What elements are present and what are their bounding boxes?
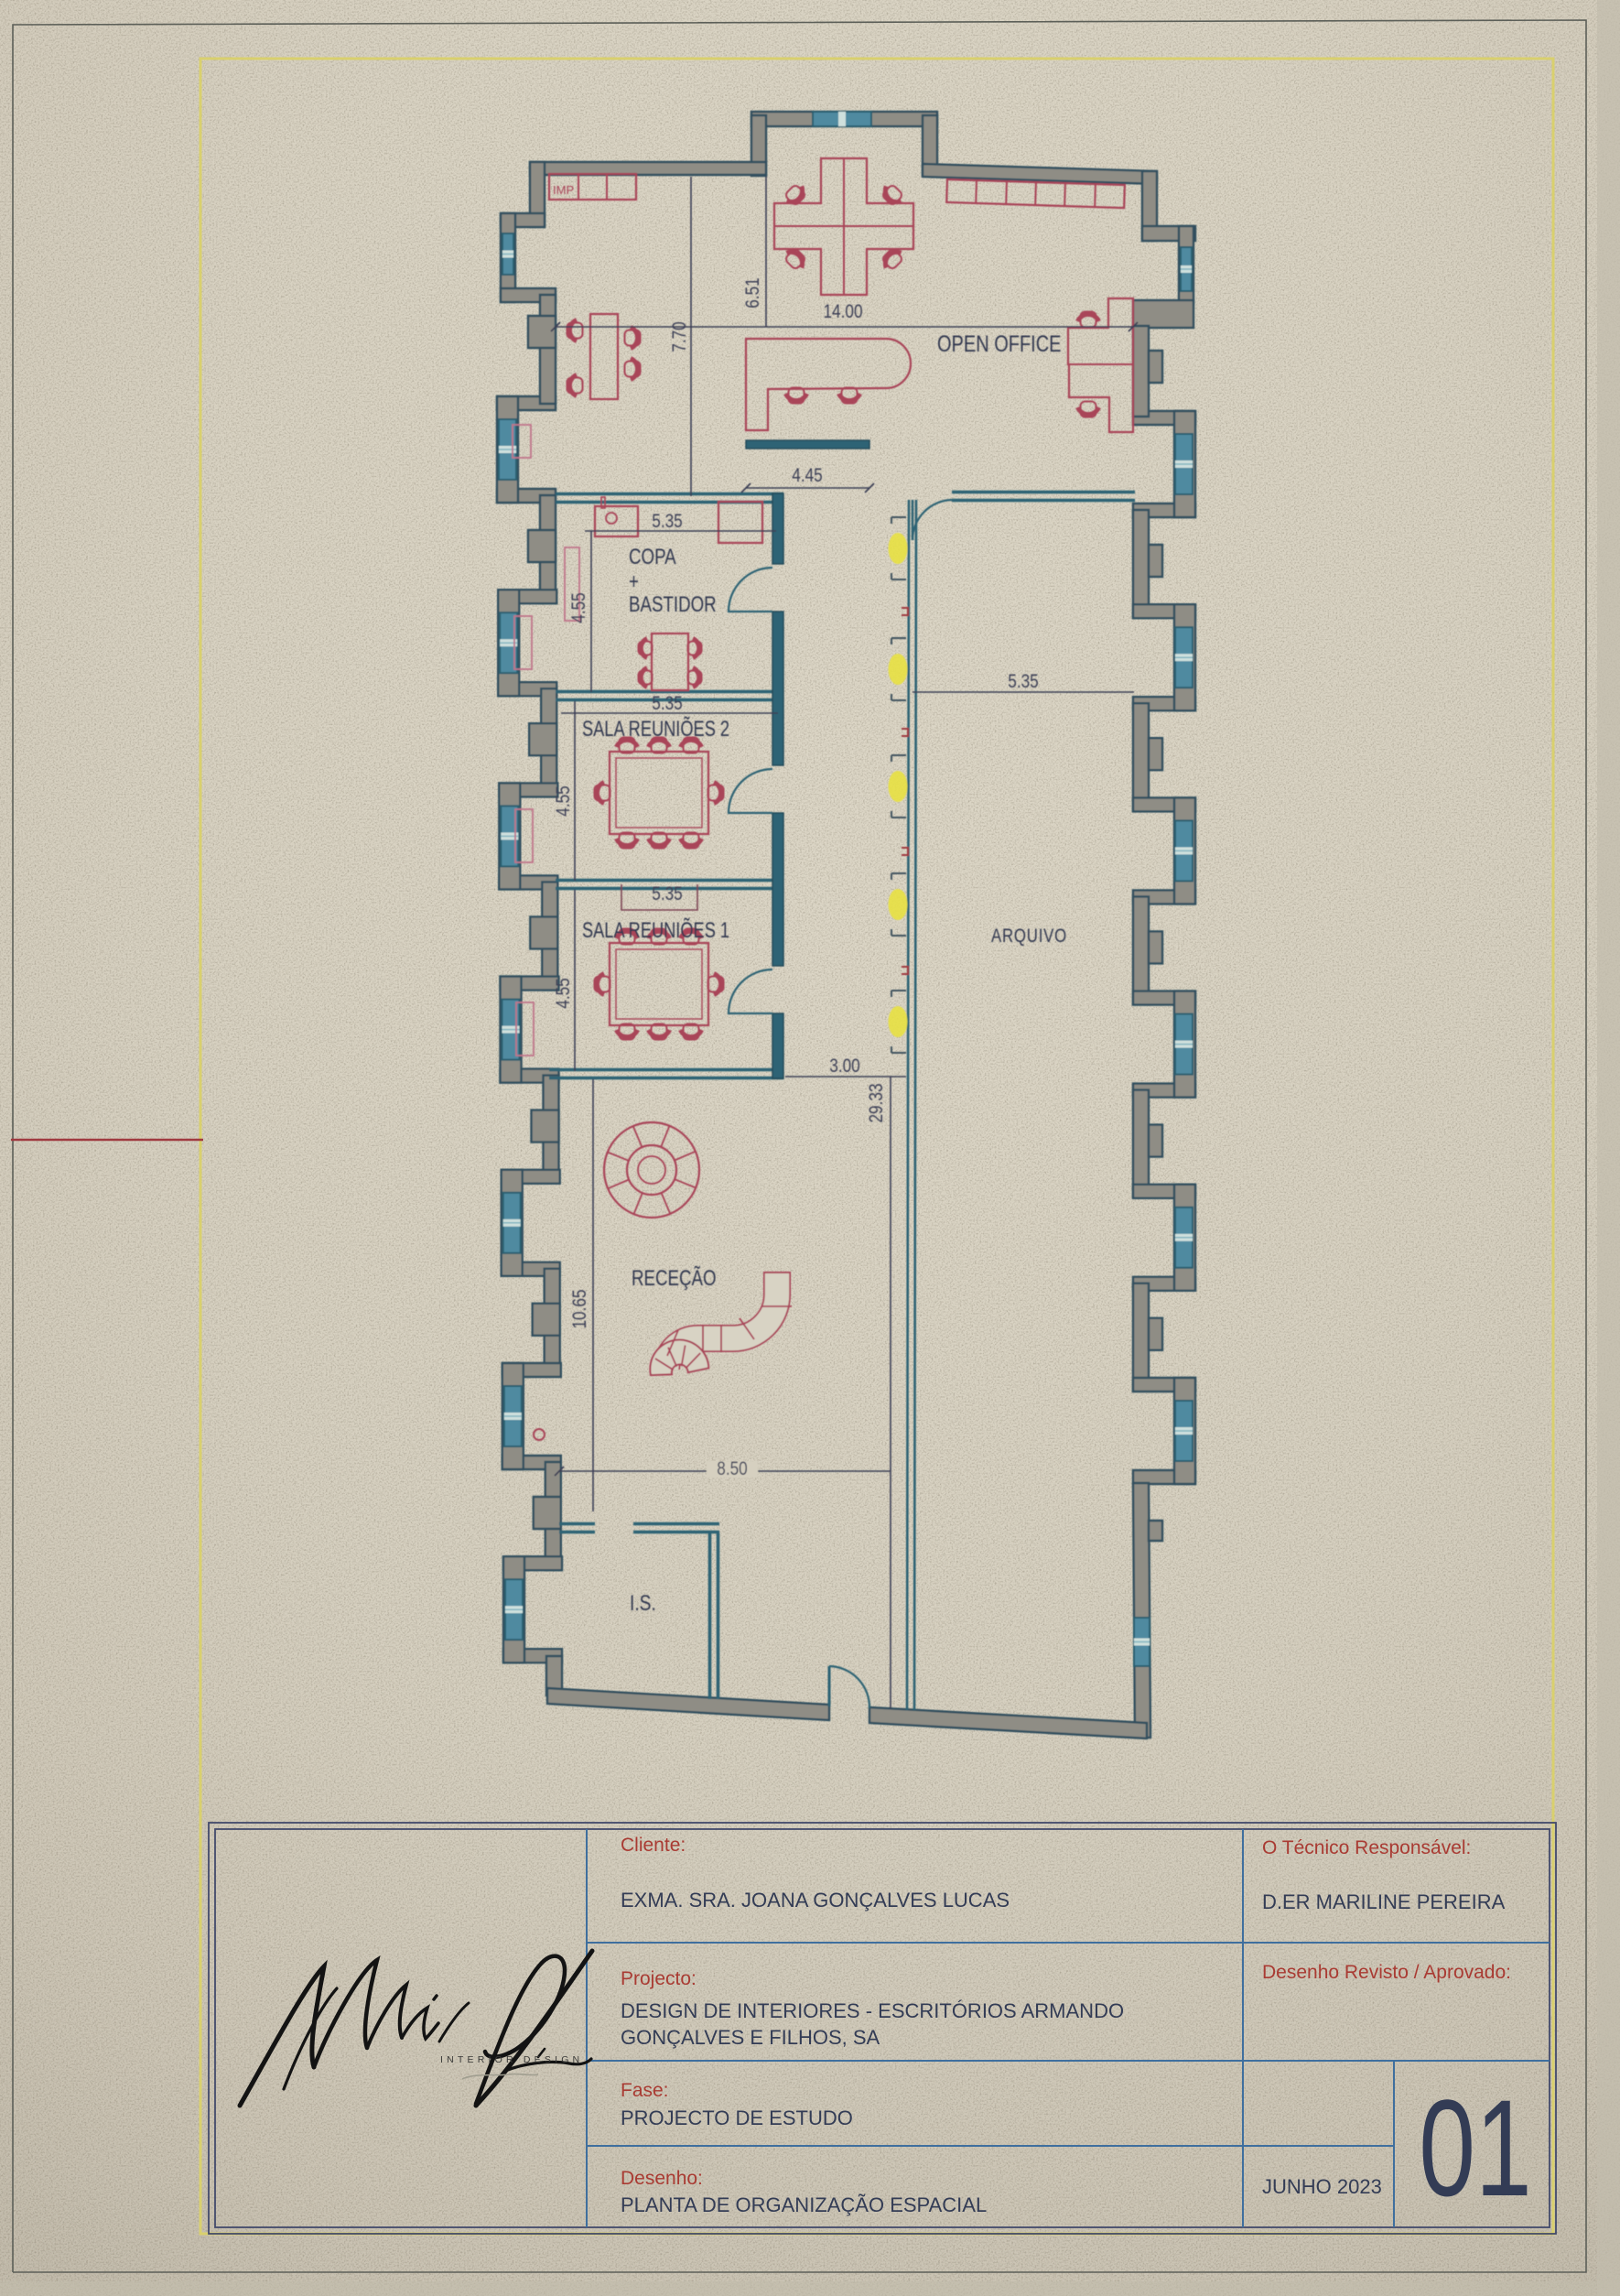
svg-text:RECEÇÃO: RECEÇÃO bbox=[632, 1265, 717, 1291]
svg-text:5.35: 5.35 bbox=[652, 512, 683, 533]
svg-text:6.51: 6.51 bbox=[743, 277, 764, 309]
svg-text:JUNHO 2023: JUNHO 2023 bbox=[1262, 2175, 1382, 2198]
svg-text:BASTIDOR: BASTIDOR bbox=[629, 592, 717, 617]
svg-text:PROJECTO DE ESTUDO: PROJECTO DE ESTUDO bbox=[621, 2106, 853, 2129]
svg-text:Fase:: Fase: bbox=[621, 2080, 669, 2101]
svg-text:O Técnico Responsável:: O Técnico Responsável: bbox=[1262, 1837, 1471, 1858]
svg-text:INTERIOR DESIGN: INTERIOR DESIGN bbox=[440, 2054, 583, 2065]
svg-text:01: 01 bbox=[1419, 2072, 1531, 2225]
svg-text:EXMA. SRA. JOANA GONÇALVES LUC: EXMA. SRA. JOANA GONÇALVES LUCAS bbox=[621, 1889, 1010, 1912]
svg-text:4.55: 4.55 bbox=[554, 785, 575, 817]
svg-text:OPEN OFFICE: OPEN OFFICE bbox=[937, 331, 1061, 357]
svg-text:7.70: 7.70 bbox=[670, 321, 691, 352]
svg-text:Projecto:: Projecto: bbox=[621, 1968, 697, 1989]
svg-text:PLANTA DE ORGANIZAÇÃO ESPACIAL: PLANTA DE ORGANIZAÇÃO ESPACIAL bbox=[621, 2193, 987, 2216]
svg-text:Desenho Revisto / Aprovado:: Desenho Revisto / Aprovado: bbox=[1262, 1962, 1511, 1983]
svg-text:4.45: 4.45 bbox=[792, 466, 823, 487]
svg-text:29.33: 29.33 bbox=[867, 1083, 888, 1122]
svg-text:D.ER MARILINE PEREIRA: D.ER MARILINE PEREIRA bbox=[1262, 1890, 1506, 1913]
svg-text:14.00: 14.00 bbox=[823, 302, 862, 323]
svg-text:COPA: COPA bbox=[629, 545, 676, 569]
svg-text:3.00: 3.00 bbox=[829, 1056, 860, 1078]
svg-text:+: + bbox=[629, 569, 639, 594]
svg-text:DESIGN DE INTERIORES - ESCRITÓ: DESIGN DE INTERIORES - ESCRITÓRIOS ARMAN… bbox=[621, 1999, 1124, 2022]
svg-text:5.35: 5.35 bbox=[1008, 672, 1039, 693]
svg-text:SALA REUNIÕES 2: SALA REUNIÕES 2 bbox=[582, 715, 729, 741]
svg-text:4.55: 4.55 bbox=[569, 592, 590, 623]
svg-text:ARQUIVO: ARQUIVO bbox=[991, 926, 1067, 947]
svg-text:IMP: IMP bbox=[553, 183, 574, 197]
svg-text:GONÇALVES E FILHOS, SA: GONÇALVES E FILHOS, SA bbox=[621, 2026, 880, 2049]
svg-text:SALA REUNIÕES 1: SALA REUNIÕES 1 bbox=[582, 916, 729, 942]
svg-text:5.35: 5.35 bbox=[652, 694, 683, 715]
svg-text:I.S.: I.S. bbox=[630, 1590, 656, 1616]
svg-text:8.50: 8.50 bbox=[717, 1459, 748, 1480]
svg-text:4.55: 4.55 bbox=[554, 978, 575, 1009]
svg-text:Desenho:: Desenho: bbox=[621, 2168, 703, 2189]
svg-text:10.65: 10.65 bbox=[570, 1289, 591, 1328]
svg-text:Cliente:: Cliente: bbox=[621, 1835, 686, 1856]
svg-text:5.35: 5.35 bbox=[652, 884, 683, 905]
